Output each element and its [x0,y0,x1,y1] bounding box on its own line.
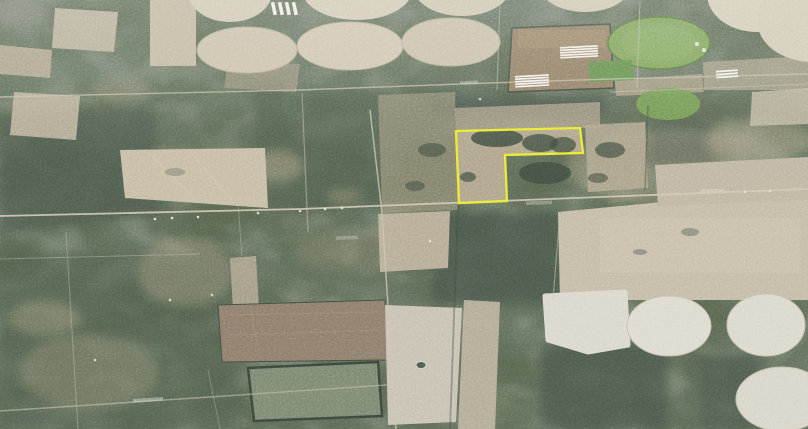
film-grain-overlay [0,0,808,429]
aerial-imagery-viewport [0,0,808,429]
aerial-canvas[interactable] [0,0,808,429]
